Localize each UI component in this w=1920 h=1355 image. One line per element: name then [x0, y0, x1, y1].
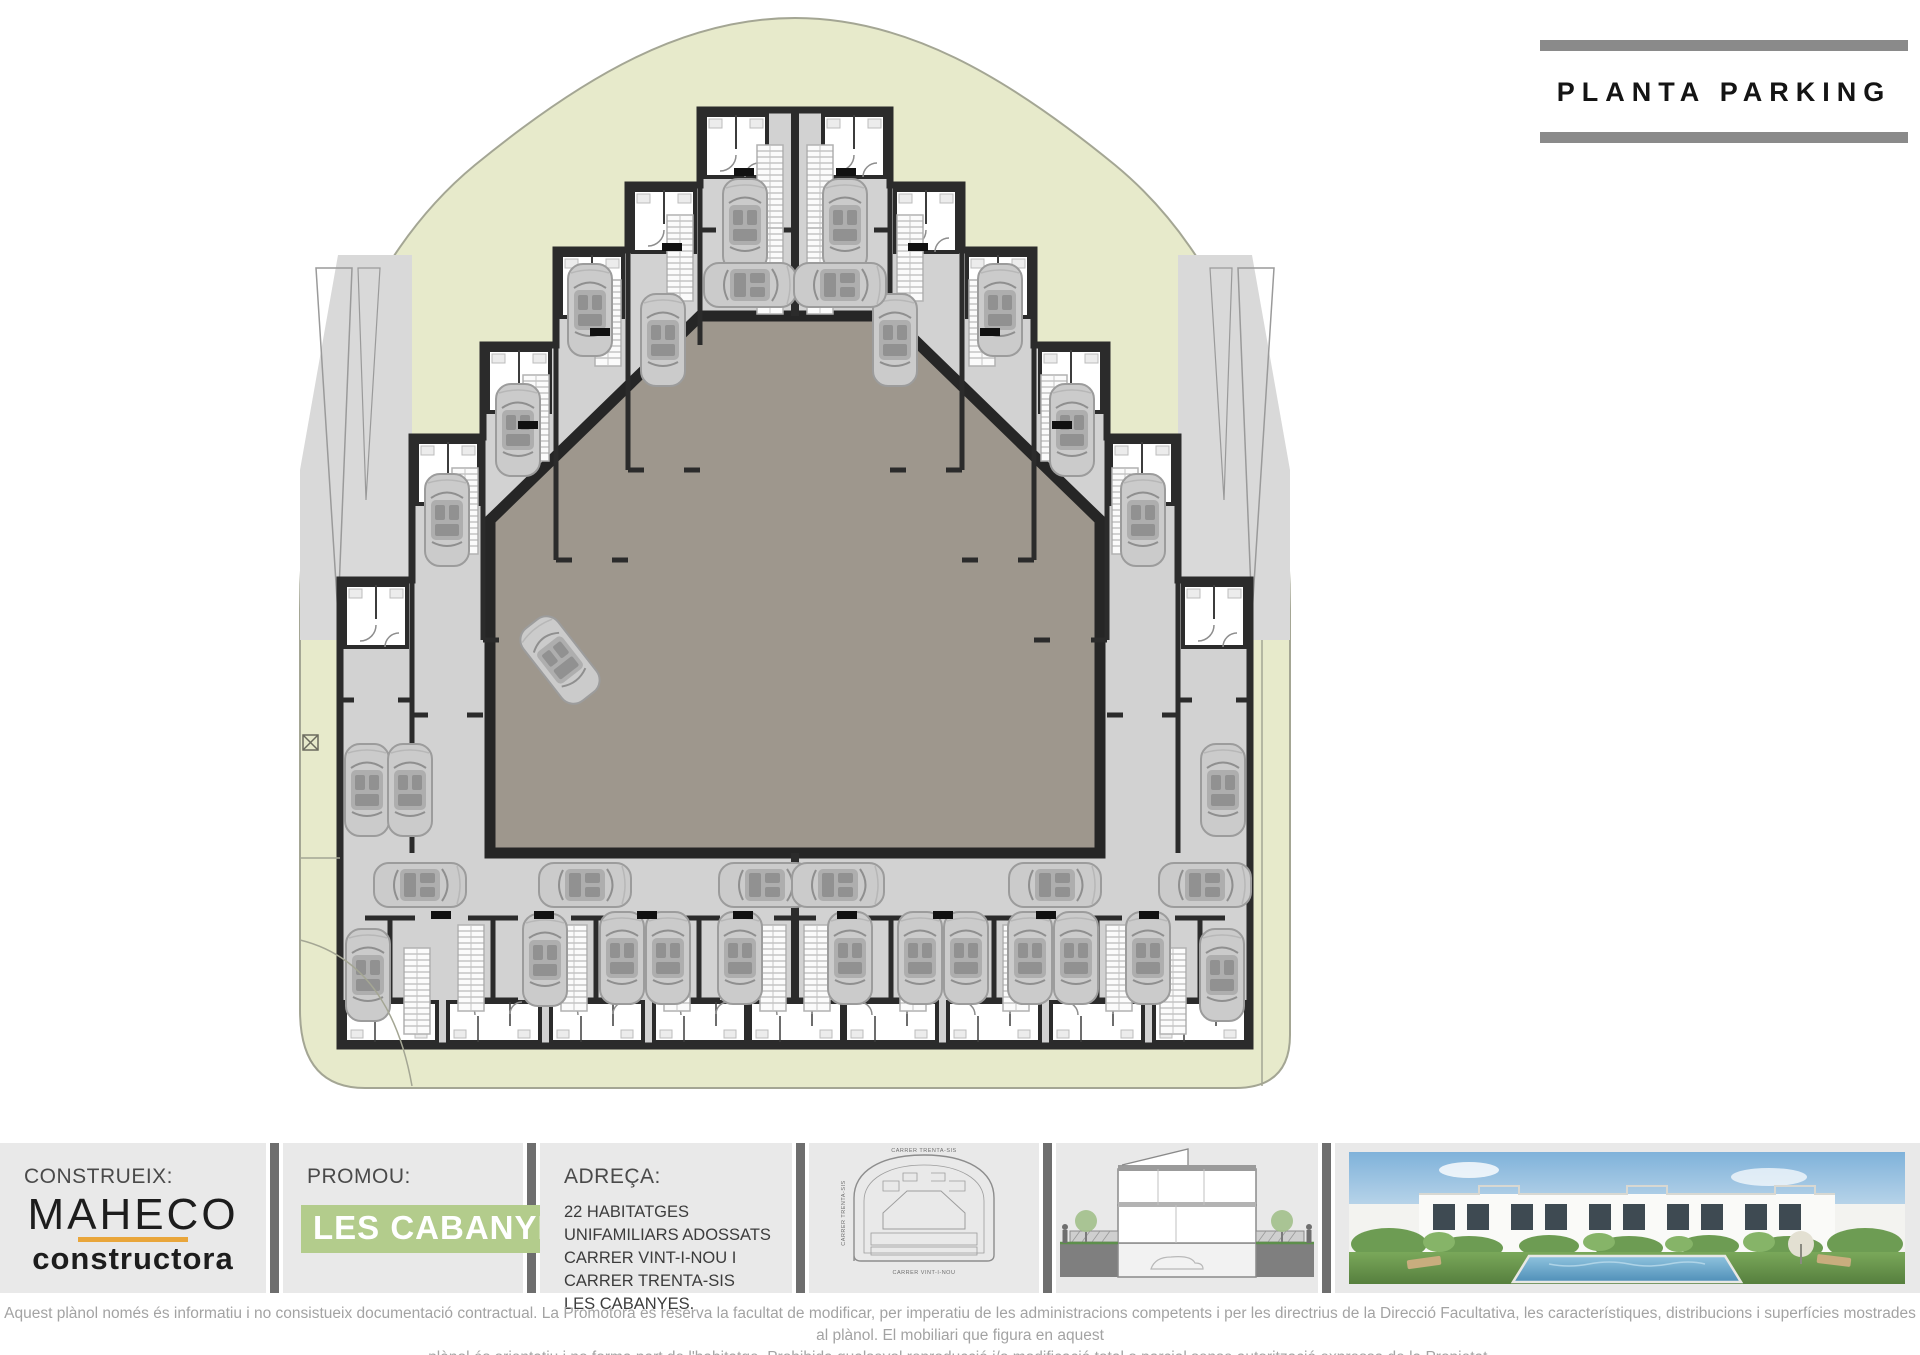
title-rule-top	[1540, 40, 1908, 51]
title-block: PLANTA PARKING	[1540, 40, 1908, 143]
siteplan-thumbnail: CARRER TRENTA-SIS CARRER TRENTA-SIS CARR…	[809, 1143, 1039, 1293]
siteplan-street-left: CARRER TRENTA-SIS	[841, 1180, 847, 1245]
panel-divider	[796, 1143, 805, 1293]
panel-siteplan: CARRER TRENTA-SIS CARRER TRENTA-SIS CARR…	[809, 1143, 1039, 1293]
panel-adreca: ADREÇA: 22 HABITATGES UNIFAMILIARS ADOSS…	[540, 1143, 792, 1293]
panel-section	[1056, 1143, 1318, 1293]
construeix-label: CONSTRUEIX:	[24, 1165, 173, 1189]
panel-divider	[1043, 1143, 1052, 1293]
panel-promou: PROMOU: LES CABANYES 2021	[283, 1143, 523, 1293]
promou-label: PROMOU:	[307, 1165, 411, 1189]
plan-sheet: PLANTA PARKING CONSTRUEIX: MAHECO constr…	[0, 0, 1920, 1355]
adreca-label: ADREÇA:	[564, 1165, 661, 1189]
panel-divider	[270, 1143, 279, 1293]
disclaimer-line-1: Aquest plànol només és informatiu i no c…	[0, 1303, 1920, 1347]
siteplan-street-top: CARRER TRENTA-SIS	[891, 1148, 956, 1154]
address-line-2: CARRER VINT-I-NOU I CARRER TRENTA-SIS	[564, 1247, 792, 1293]
siteplan-street-bottom: CARRER VINT-I-NOU	[893, 1270, 956, 1276]
panel-render	[1335, 1143, 1920, 1293]
maheco-brand-name: MAHECO	[0, 1195, 266, 1235]
disclaimer-line-2: plànol és orientatiu i no forma part de …	[0, 1347, 1920, 1355]
maheco-logo: MAHECO constructora	[0, 1195, 266, 1274]
render-thumbnail	[1349, 1152, 1905, 1284]
page-title: PLANTA PARKING	[1540, 77, 1908, 108]
disclaimer: Aquest plànol només és informatiu i no c…	[0, 1303, 1920, 1355]
title-rule-bottom	[1540, 132, 1908, 143]
maheco-brand-sub: constructora	[0, 1244, 266, 1274]
panel-divider	[1322, 1143, 1331, 1293]
section-drawing	[1056, 1143, 1318, 1293]
info-bar: CONSTRUEIX: MAHECO constructora PROMOU: …	[0, 1143, 1920, 1293]
address-line-1: 22 HABITATGES UNIFAMILIARS ADOSSATS	[564, 1201, 792, 1247]
panel-construeix: CONSTRUEIX: MAHECO constructora	[0, 1143, 266, 1293]
parking-floor-plan	[0, 0, 1920, 1100]
